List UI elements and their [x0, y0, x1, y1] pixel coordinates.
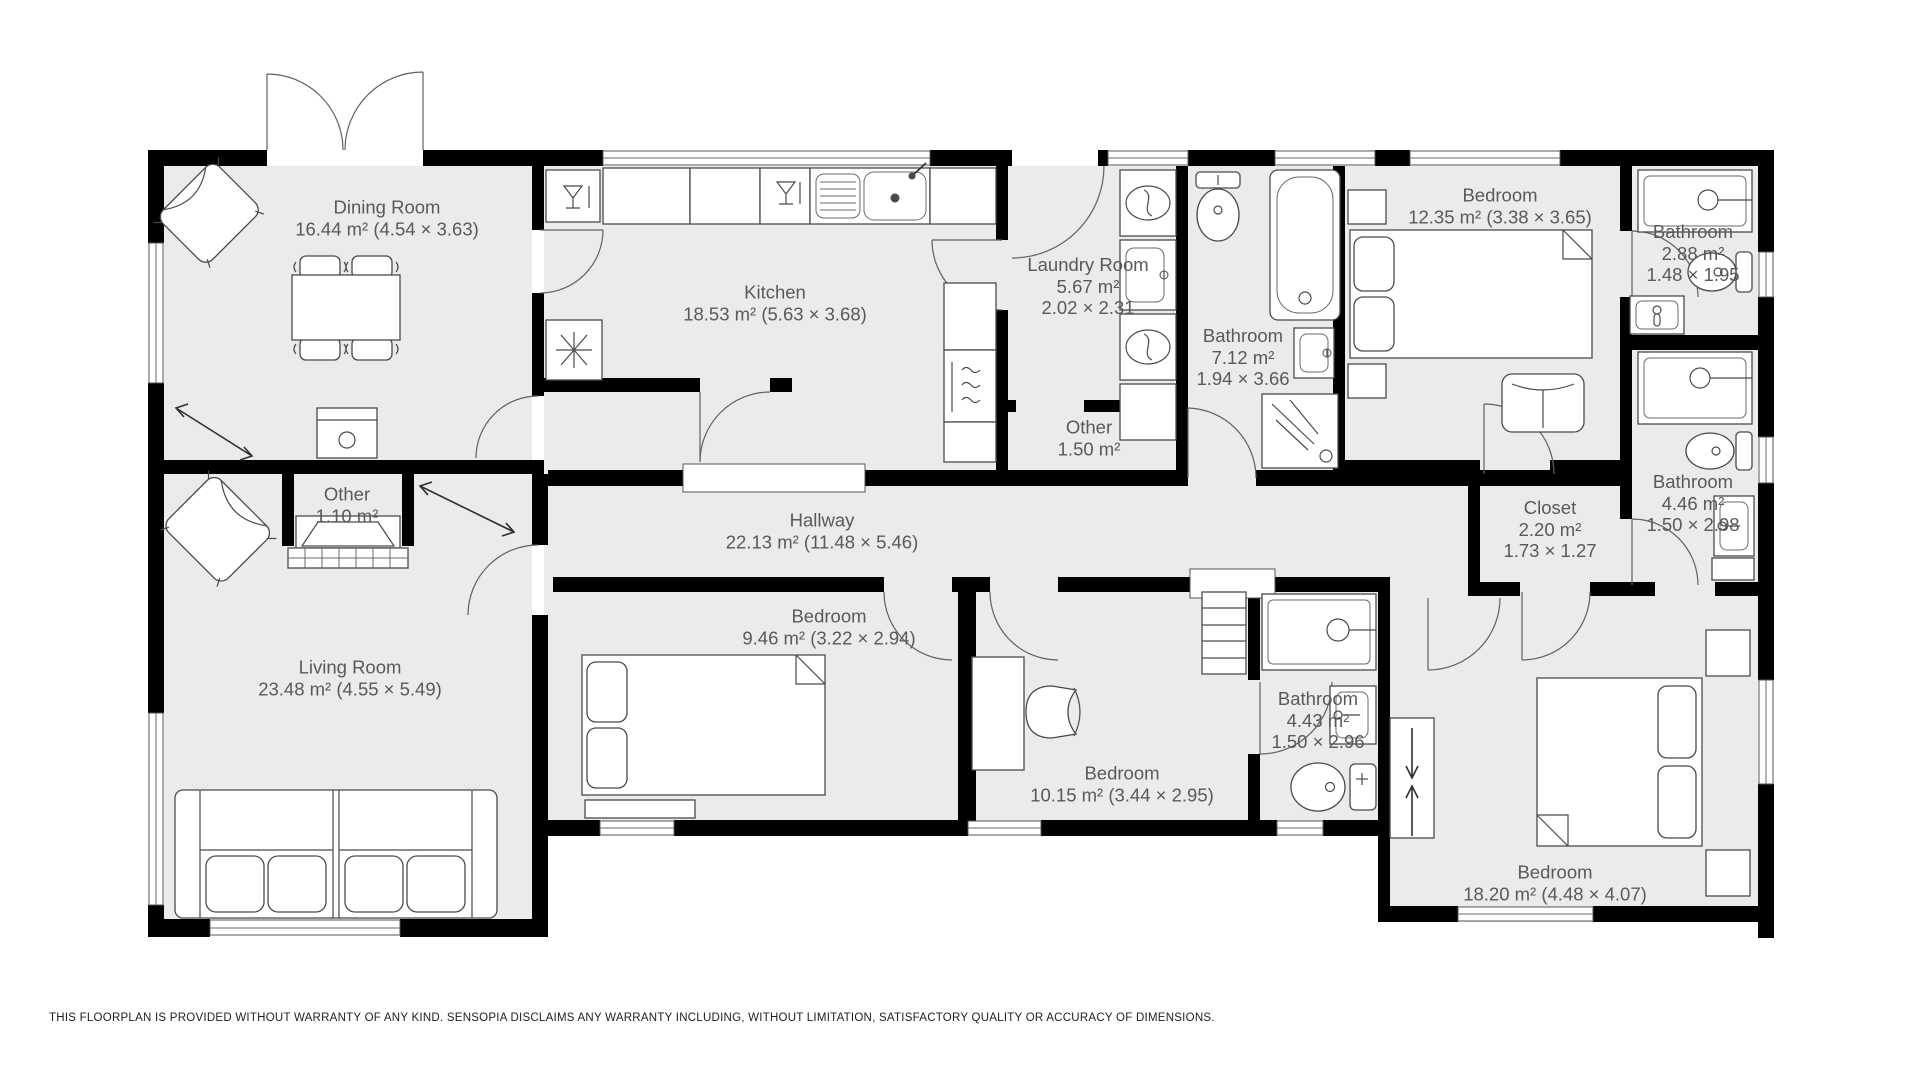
nightstand-icon	[1348, 190, 1386, 224]
window-icon	[603, 151, 930, 165]
desk-icon	[972, 657, 1024, 770]
window-icon	[968, 821, 1041, 835]
toilet-icon	[1686, 432, 1752, 470]
nightstand-icon	[1706, 630, 1750, 676]
shower-icon	[1262, 394, 1338, 468]
sofa-icon	[175, 790, 497, 918]
window-icon	[149, 713, 163, 905]
room-label-bathroom-288: Bathroom2.88 m²1.48 × 1.95	[1646, 221, 1739, 286]
window-icon	[600, 821, 674, 835]
bathroom-sink-icon	[1630, 296, 1684, 334]
window-icon	[1410, 151, 1560, 165]
room-label-bedroom-946: Bedroom9.46 m² (3.22 × 2.94)	[742, 606, 915, 649]
room-label-bathroom-712: Bathroom7.12 m²1.94 × 3.66	[1196, 325, 1289, 390]
dryer-icon	[1120, 314, 1176, 380]
bed-icon	[1537, 678, 1702, 846]
room-label-bathroom-443: Bathroom4.43 m²1.50 × 2.96	[1271, 688, 1364, 753]
shower-icon	[1638, 352, 1752, 424]
room-label-bedroom-1235: Bedroom12.35 m² (3.38 × 3.65)	[1408, 185, 1592, 228]
nightstand-icon	[1348, 364, 1386, 398]
disclaimer-text: THIS FLOORPLAN IS PROVIDED WITHOUT WARRA…	[49, 1012, 1215, 1024]
window-icon	[1275, 151, 1375, 165]
window-icon	[1108, 151, 1188, 165]
window-icon	[1759, 437, 1773, 483]
dishwasher-icon	[546, 170, 600, 222]
washer-icon	[1120, 170, 1176, 236]
room-label-laundry-room: Laundry Room5.67 m²2.02 × 2.31	[1027, 254, 1148, 319]
bathroom-sink-icon	[1294, 328, 1334, 378]
room-label-closet: Closet2.20 m²1.73 × 1.27	[1503, 497, 1596, 562]
shelving-icon	[1202, 592, 1246, 674]
bathtub-icon	[1270, 170, 1340, 320]
window-icon	[149, 243, 163, 383]
bedroom-946-furniture	[582, 655, 825, 818]
room-label-dining-room: Dining Room16.44 m² (4.54 × 3.63)	[295, 197, 479, 240]
room-label-hallway: Hallway22.13 m² (11.48 × 5.46)	[726, 510, 918, 553]
kitchen-counter-icon	[603, 163, 996, 224]
dresser-icon	[585, 800, 695, 818]
room-label-bedroom-1820: Bedroom18.20 m² (4.48 × 4.07)	[1463, 862, 1647, 905]
window-icon	[1759, 680, 1773, 784]
room-label-living-room: Living Room23.48 m² (4.55 × 5.49)	[258, 657, 442, 700]
oven-icon	[944, 283, 996, 462]
window-icon	[1759, 252, 1773, 297]
toilet-icon	[1291, 763, 1376, 811]
loveseat-icon	[1502, 374, 1584, 432]
room-label-kitchen: Kitchen18.53 m² (5.63 × 3.68)	[683, 282, 867, 325]
nightstand-icon	[1706, 850, 1750, 896]
shower-icon	[1262, 594, 1376, 670]
window-icon	[1458, 907, 1593, 921]
dresser-icon	[317, 408, 377, 458]
wardrobe-icon	[1390, 718, 1434, 838]
window-icon	[210, 920, 400, 935]
toilet-icon	[1196, 172, 1240, 241]
room-label-other-110: Other1.10 m²	[316, 484, 379, 527]
fridge-icon	[546, 320, 602, 380]
bed-icon	[1350, 230, 1592, 358]
bed-icon	[582, 655, 825, 795]
room-label-other-150: Other1.50 m²	[1058, 417, 1121, 460]
room-label-bathroom-446: Bathroom4.46 m²1.50 × 2.98	[1646, 471, 1739, 536]
double-entry-door	[267, 72, 423, 150]
window-icon	[1277, 821, 1323, 835]
room-label-bedroom-1015: Bedroom10.15 m² (3.44 × 2.95)	[1030, 763, 1214, 806]
floorplan-canvas	[0, 0, 1920, 1080]
cabinet-icon	[1120, 384, 1176, 440]
floorplan-page: Dining Room16.44 m² (4.54 × 3.63) Kitche…	[0, 0, 1920, 1080]
